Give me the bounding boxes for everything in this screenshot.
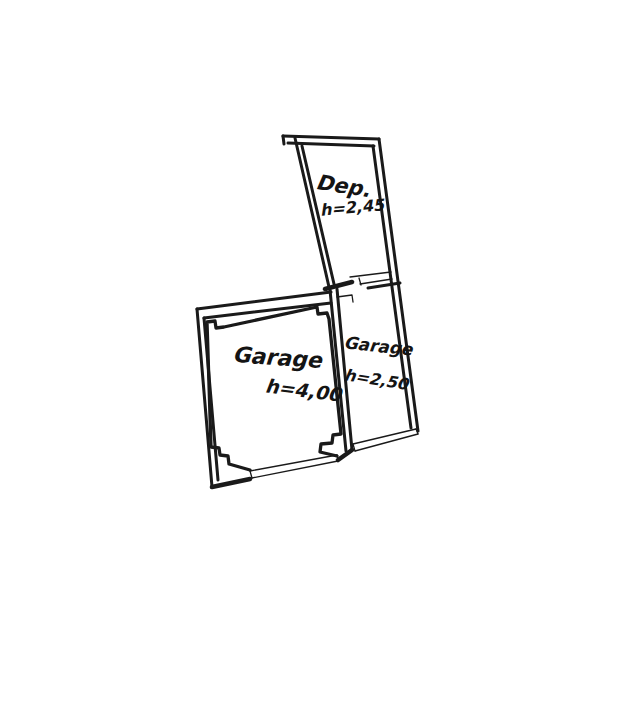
wall-top-outer (283, 136, 379, 139)
dep-divider-and-door (325, 272, 400, 289)
dep-room-height: h=2,45 (319, 195, 387, 220)
floor-plan-canvas: Dep. h=2,45 Garage h=4,00 Garage h=2,50 (0, 0, 629, 712)
floor-plan-page: Dep. h=2,45 Garage h=4,00 Garage h=2,50 (0, 0, 629, 712)
main-garage-label: Garage (232, 342, 325, 373)
dep-door-bottom-line (360, 279, 392, 284)
main-garage-door-top-line (250, 455, 337, 471)
wall-top-left-cap (283, 136, 284, 144)
garage-small-top-stub (368, 283, 400, 288)
dep-door-top-line (350, 272, 391, 277)
small-garage-height: h=2,50 (343, 365, 411, 394)
main-garage-height: h=4,00 (264, 374, 344, 405)
main-garage-door-bottom-line (252, 461, 338, 478)
